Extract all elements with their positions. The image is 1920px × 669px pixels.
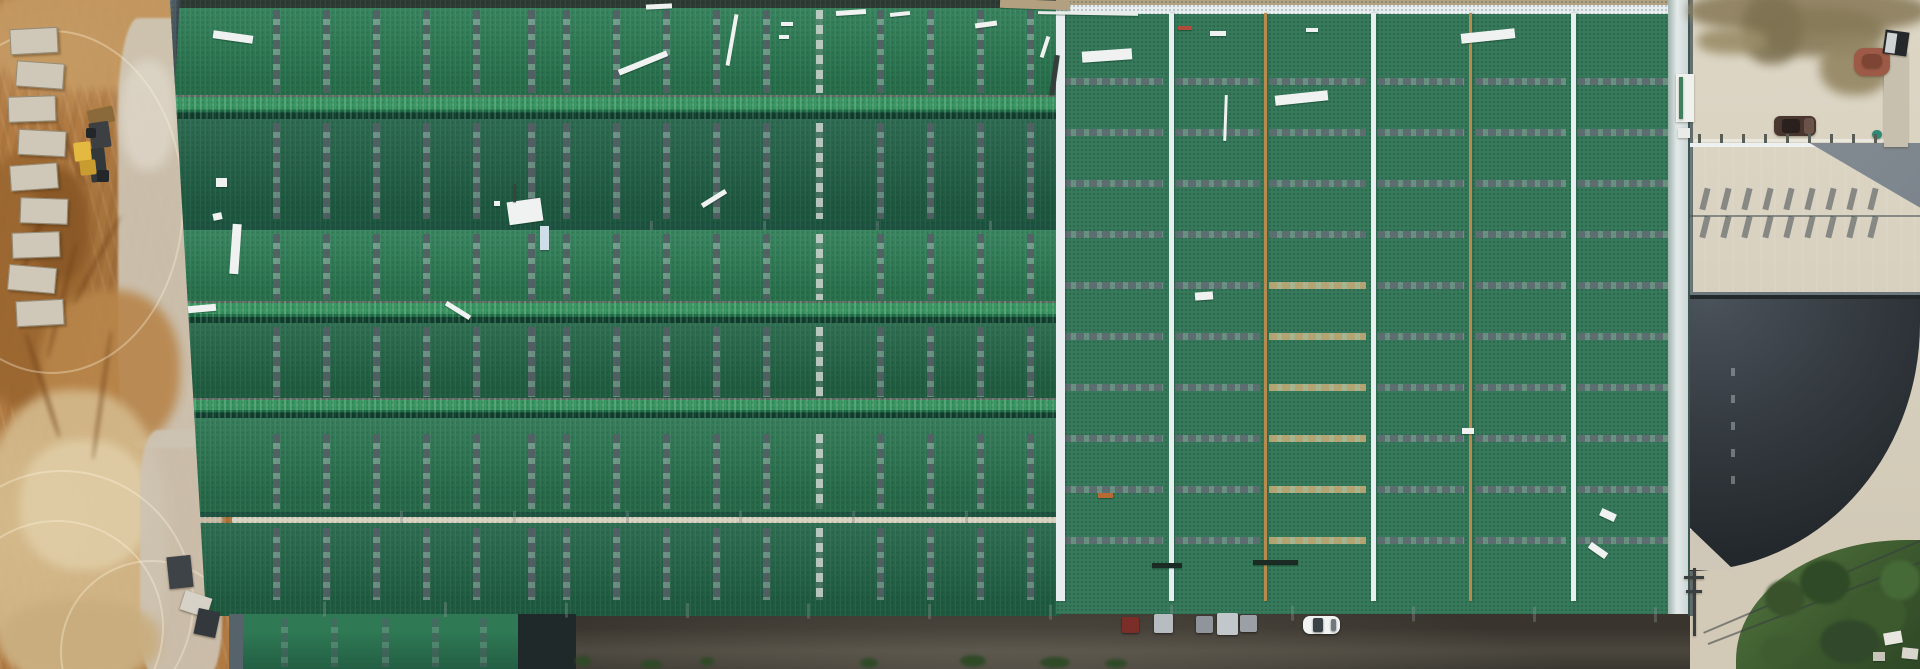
rooftop-vent-shadow (1804, 216, 1815, 239)
fence-post (1764, 134, 1767, 143)
green-barrel (1872, 130, 1882, 139)
rooftop-vent-shadow (1741, 188, 1752, 211)
roof-extension-lower (243, 614, 520, 669)
ground-stain (1820, 40, 1890, 95)
dumpster-lid (1885, 32, 1898, 53)
tree-canopy (1820, 620, 1880, 664)
dark-dock-pit (518, 614, 576, 669)
rooftop-vent-shadow (1783, 188, 1794, 211)
gray-roof-ridge-shadow (1690, 215, 1920, 217)
roof-slope-4 (170, 323, 1060, 398)
roof-slope-1 (170, 8, 1060, 95)
rust-pile-core (1862, 54, 1882, 68)
annex-roof-dash (1731, 422, 1735, 430)
dumpster (1882, 29, 1909, 56)
vegetation-corner (1736, 540, 1920, 669)
annex-roof-dash (1731, 368, 1735, 376)
ground-stain (1688, 0, 1920, 34)
tree-canopy (1765, 580, 1805, 616)
rooftop-vent-shadow (1699, 188, 1710, 211)
concrete-path (1884, 52, 1908, 147)
green-roof-right-section (1056, 0, 1690, 614)
rooftop-vent-shadow (1762, 188, 1773, 211)
rooftop-vent-shadow (1867, 188, 1878, 211)
fence-post (1698, 134, 1701, 143)
fence-post (1742, 134, 1745, 143)
gray-roof-dark-plane (1690, 143, 1920, 297)
annex-roof-dash (1731, 476, 1735, 484)
rooftop-vent-shadow (1846, 188, 1857, 211)
rooftop-vent-shadow (1804, 188, 1815, 211)
rooftop-vent-shadow (1720, 188, 1731, 211)
aerial-photo-scene (0, 0, 1920, 669)
fence-line (1694, 139, 1892, 142)
power-line (1708, 557, 1920, 645)
tree-canopy (1850, 590, 1906, 640)
rooftop-vent-shadow (1762, 216, 1773, 239)
corner-object (1901, 647, 1918, 660)
suv-windows (1782, 119, 1800, 133)
corner-object (1883, 631, 1903, 646)
fence-post (1852, 134, 1855, 143)
fence-post (1830, 134, 1833, 143)
roof-slope-3 (170, 230, 1060, 301)
tree-canopy (1880, 560, 1920, 600)
annex-roof-dash (1731, 449, 1735, 457)
roof-slope-5 (170, 418, 1060, 512)
roof-top-edge (170, 0, 1060, 8)
tree-canopy (1760, 636, 1800, 666)
fence-post (1720, 134, 1723, 143)
annex-roof-dash (1731, 395, 1735, 403)
rooftop-vent-shadow (1825, 188, 1836, 211)
rooftop-vent-shadow (1783, 216, 1794, 239)
concrete-apron (1690, 0, 1920, 669)
corner-object (1873, 652, 1885, 661)
roof-walkway-3 (290, 511, 1060, 523)
rooftop-vent-shadow (1825, 216, 1836, 239)
suv-hood (1804, 118, 1814, 134)
fence-post (1874, 134, 1877, 143)
gray-roof-building (1690, 143, 1920, 297)
rooftop-vent-shadow (1867, 216, 1878, 239)
annex-corner-wedge (1690, 528, 1734, 570)
fence-post (1808, 134, 1811, 143)
north-eave-white (1056, 5, 1690, 14)
rooftop-vent-shadow (1720, 216, 1731, 239)
tree-canopy (1800, 560, 1850, 604)
ridge-cap-3 (170, 398, 1060, 418)
roof-slope-2 (170, 119, 1060, 222)
wall-shadow-strip (229, 614, 244, 669)
ground-stain (1742, 0, 1802, 64)
charcoal-curved-annex-roof (1690, 295, 1920, 571)
ridge-cap-1 (170, 95, 1060, 119)
rust-pile (1854, 48, 1890, 76)
gray-roof-eave (1690, 143, 1920, 147)
rooftop-vent-shadow (1741, 216, 1752, 239)
ridge-cap-2 (170, 301, 1060, 323)
rooftop-vent-shadow (1846, 216, 1857, 239)
fence-post (1786, 134, 1789, 143)
ground-stain (1755, 8, 1885, 56)
gray-roof-bottom-edge (1690, 292, 1920, 297)
suv (1774, 116, 1816, 136)
power-line (1703, 538, 1920, 634)
green-warehouse-sawtooth-roof (170, 0, 1060, 616)
rooftop-vent-shadow (1699, 216, 1710, 239)
ground-stain (1697, 28, 1767, 54)
